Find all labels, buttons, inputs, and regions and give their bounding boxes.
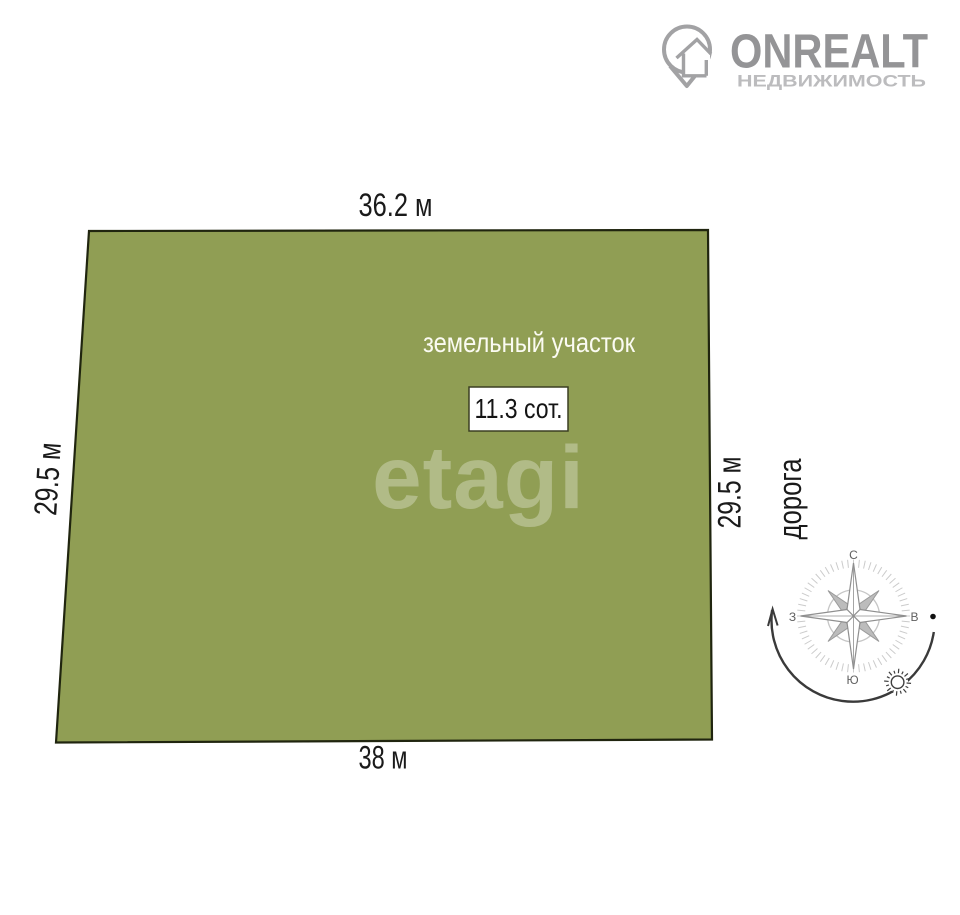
svg-text:11.3 сот.: 11.3 сот.: [475, 393, 563, 424]
svg-text:etagi: etagi: [372, 427, 585, 527]
svg-text:Ю: Ю: [846, 673, 858, 687]
svg-text:36.2 м: 36.2 м: [359, 187, 433, 223]
svg-text:29.5 м: 29.5 м: [712, 457, 748, 529]
svg-text:З: З: [789, 610, 796, 624]
svg-text:ONREALT: ONREALT: [730, 26, 928, 79]
svg-text:С: С: [849, 548, 858, 562]
svg-text:НЕДВИЖИМОСТЬ: НЕДВИЖИМОСТЬ: [737, 73, 926, 91]
svg-text:земельный участок: земельный участок: [423, 327, 636, 358]
svg-text:В: В: [910, 610, 918, 624]
svg-text:38 м: 38 м: [359, 740, 408, 776]
svg-text:дорога: дорога: [772, 458, 808, 539]
svg-text:29.5 м: 29.5 м: [27, 441, 68, 516]
